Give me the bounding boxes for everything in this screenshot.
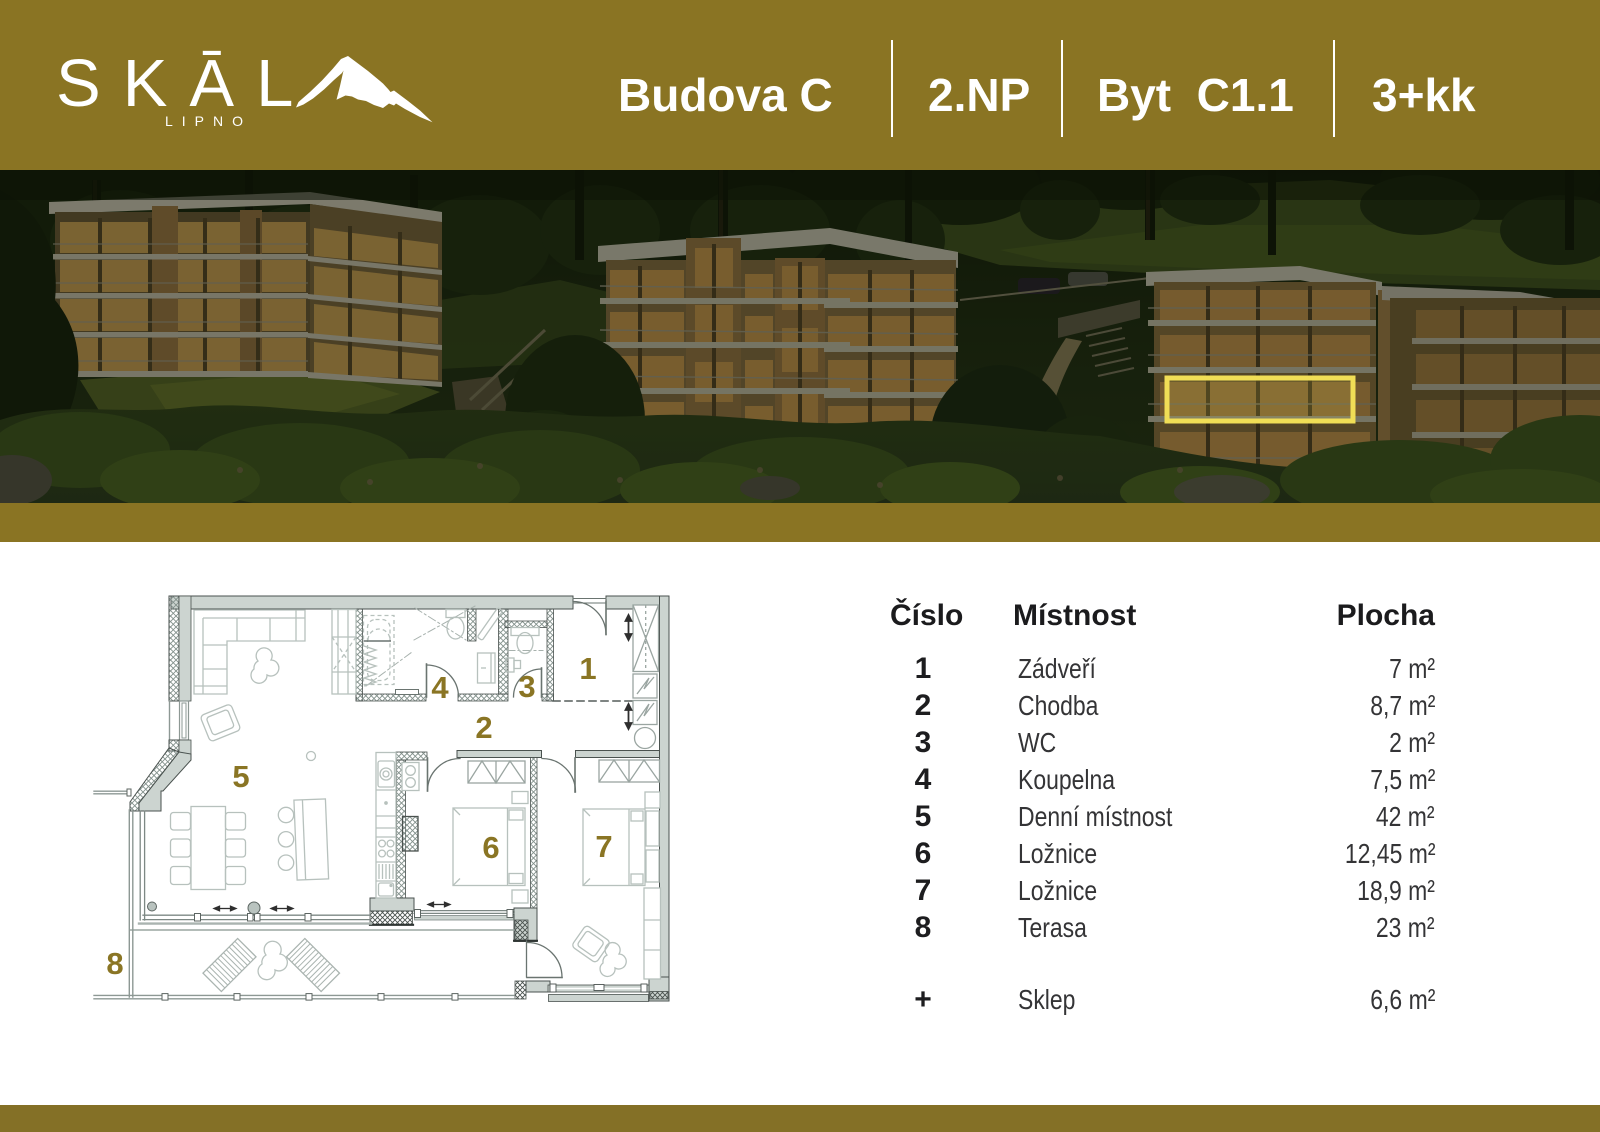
svg-text:3: 3 [518, 669, 535, 704]
svg-text:7: 7 [595, 829, 612, 864]
svg-text:5: 5 [232, 759, 249, 794]
svg-text:8: 8 [106, 946, 123, 981]
svg-text:2: 2 [475, 710, 492, 745]
svg-text:4: 4 [431, 670, 449, 705]
svg-text:6: 6 [482, 830, 499, 865]
svg-text:1: 1 [579, 651, 596, 686]
